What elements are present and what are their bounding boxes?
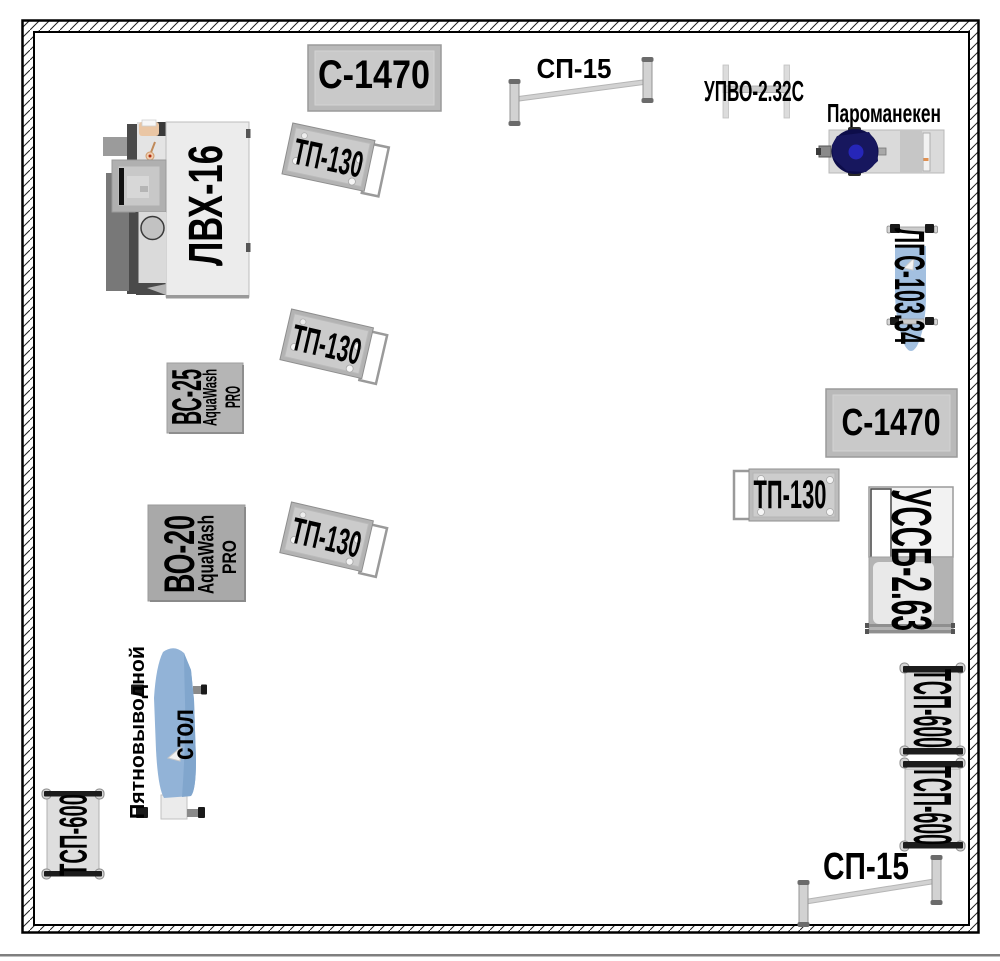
svg-text:СП-15: СП-15	[823, 846, 909, 888]
svg-text:ЛГС-103.34: ЛГС-103.34	[885, 228, 933, 344]
svg-text:УССБ-2.63: УССБ-2.63	[879, 489, 943, 631]
svg-text:ТСП-600: ТСП-600	[902, 669, 962, 748]
svg-text:Пятновыводной: Пятновыводной	[127, 646, 149, 819]
svg-text:ЛВХ-16: ЛВХ-16	[180, 145, 233, 266]
svg-text:PRO: PRO	[219, 540, 241, 574]
svg-text:СП-15: СП-15	[537, 53, 612, 84]
svg-text:стол: стол	[167, 709, 200, 760]
svg-text:ТСП-600: ТСП-600	[53, 794, 96, 876]
svg-text:AquaWash: AquaWash	[201, 369, 222, 426]
svg-text:С-1470: С-1470	[842, 402, 941, 444]
svg-text:УПВО-2.32С: УПВО-2.32С	[704, 76, 804, 108]
svg-text:ТП-130: ТП-130	[754, 473, 827, 517]
svg-text:ТСП-600: ТСП-600	[902, 766, 962, 845]
svg-text:С-1470: С-1470	[318, 53, 430, 97]
svg-text:AquaWash: AquaWash	[194, 515, 219, 594]
svg-text:PRO: PRO	[222, 386, 245, 408]
svg-text:Пароманекен: Пароманекен	[827, 98, 941, 128]
